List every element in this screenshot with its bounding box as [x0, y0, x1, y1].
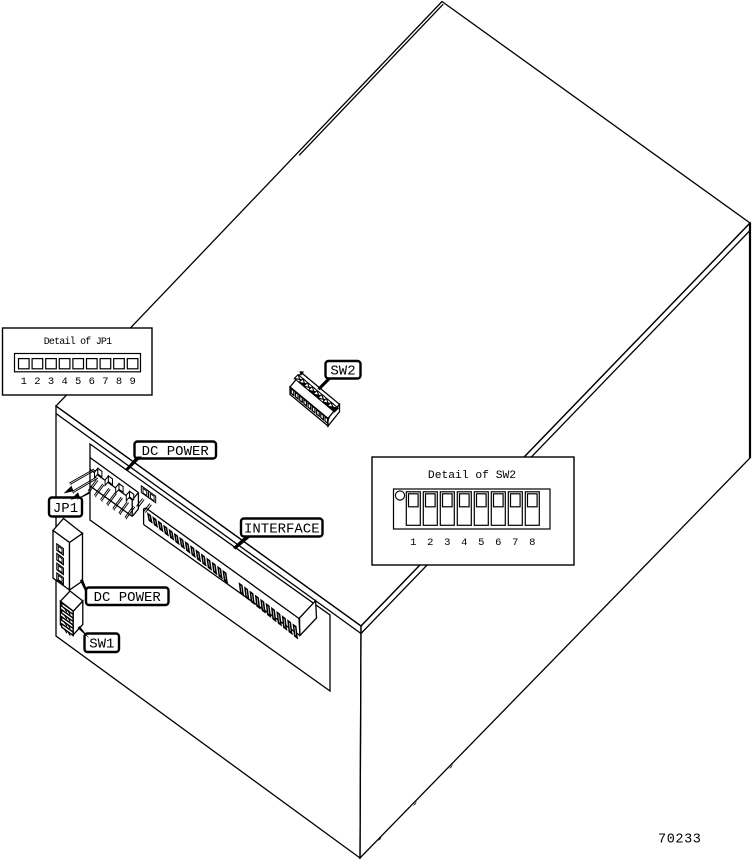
svg-text:6: 6 [495, 537, 501, 549]
svg-text:DC POWER: DC POWER [142, 444, 210, 460]
svg-text:7: 7 [102, 376, 108, 388]
svg-text:4: 4 [61, 376, 67, 388]
svg-text:8: 8 [529, 537, 535, 549]
svg-text:DC POWER: DC POWER [94, 590, 162, 606]
svg-text:1: 1 [410, 537, 416, 549]
svg-text:6: 6 [89, 376, 95, 388]
svg-text:8: 8 [116, 376, 122, 388]
svg-text:2: 2 [427, 537, 433, 549]
svg-text:9: 9 [129, 376, 135, 388]
svg-text:JP1: JP1 [53, 501, 78, 517]
svg-text:Detail of SW2: Detail of SW2 [428, 470, 516, 482]
svg-text:2: 2 [34, 376, 40, 388]
svg-text:SW2: SW2 [330, 364, 355, 380]
svg-text:1: 1 [21, 376, 27, 388]
svg-text:5: 5 [75, 376, 81, 388]
svg-text:4: 4 [461, 537, 467, 549]
svg-text:3: 3 [48, 376, 54, 388]
svg-text:INTERFACE: INTERFACE [244, 521, 320, 537]
svg-text:5: 5 [478, 537, 484, 549]
svg-text:7: 7 [512, 537, 518, 549]
svg-text:70233: 70233 [658, 833, 702, 848]
svg-text:SW1: SW1 [89, 637, 114, 653]
svg-text:Detail of JP1: Detail of JP1 [44, 336, 112, 348]
svg-text:3: 3 [444, 537, 450, 549]
